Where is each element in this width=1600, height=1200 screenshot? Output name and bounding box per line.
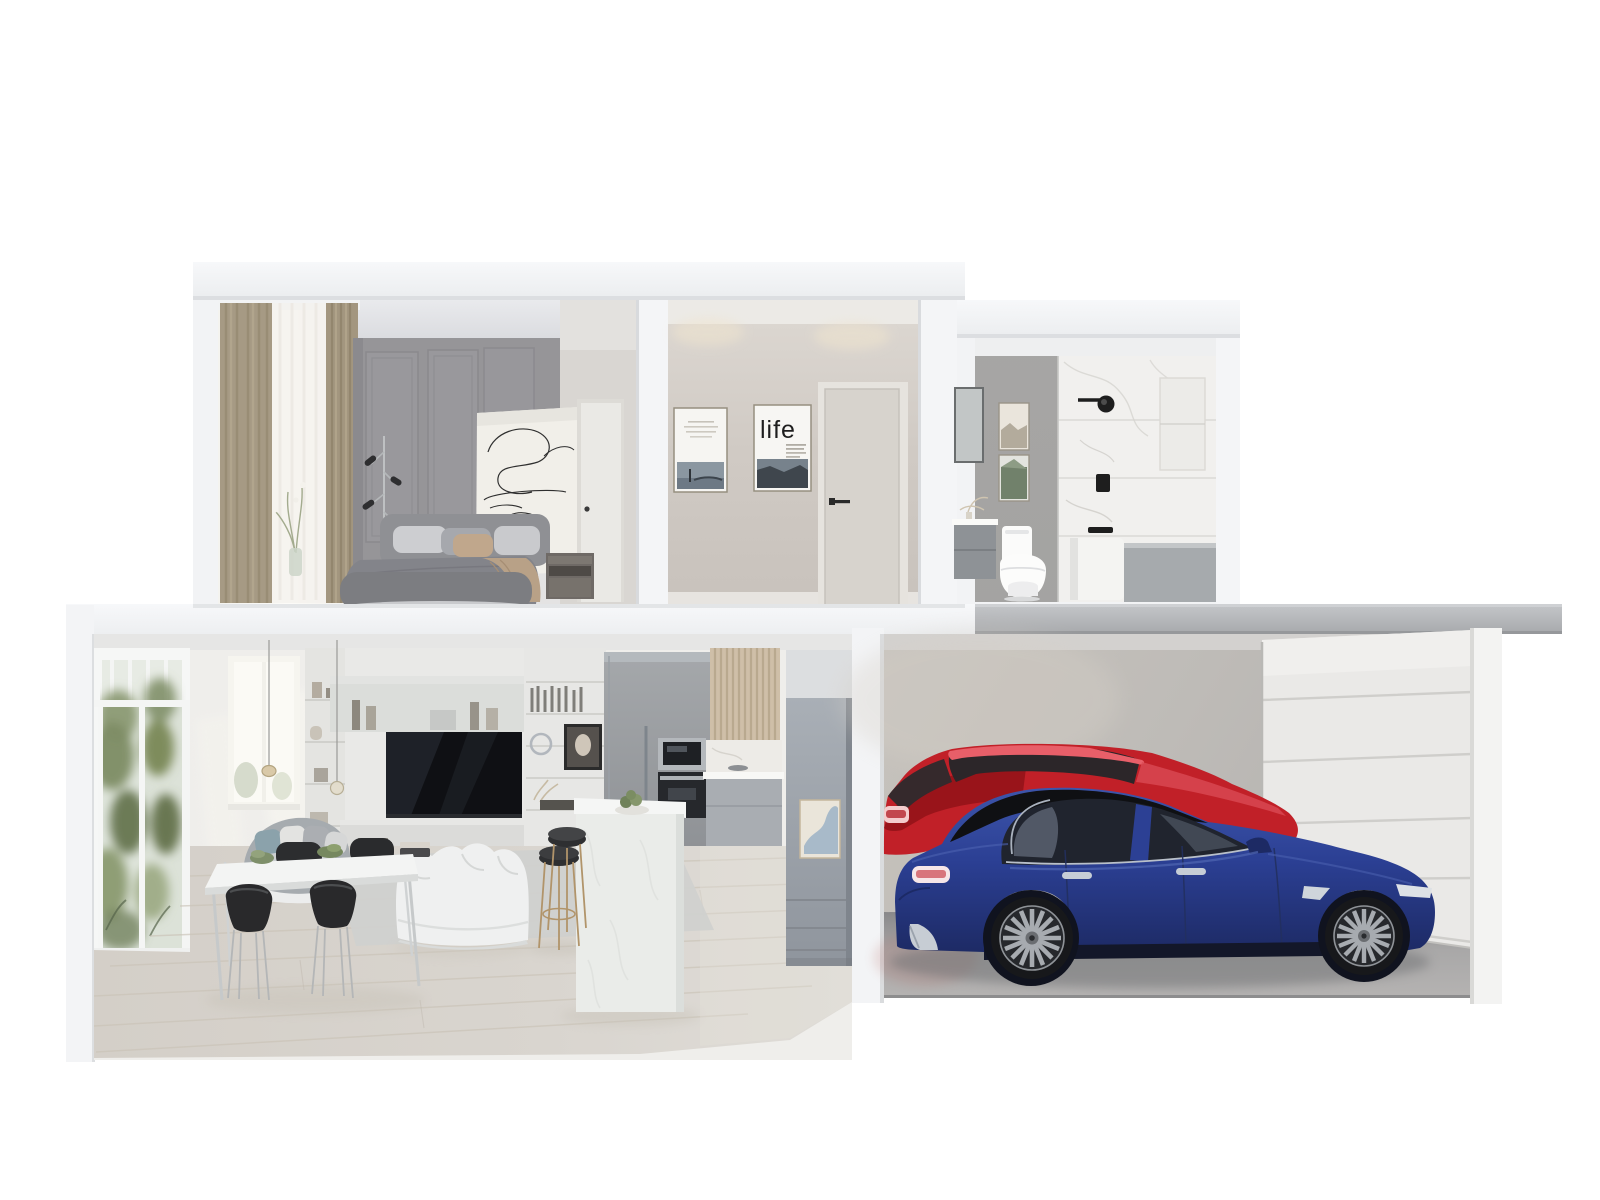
- svg-text:life: life: [760, 416, 796, 444]
